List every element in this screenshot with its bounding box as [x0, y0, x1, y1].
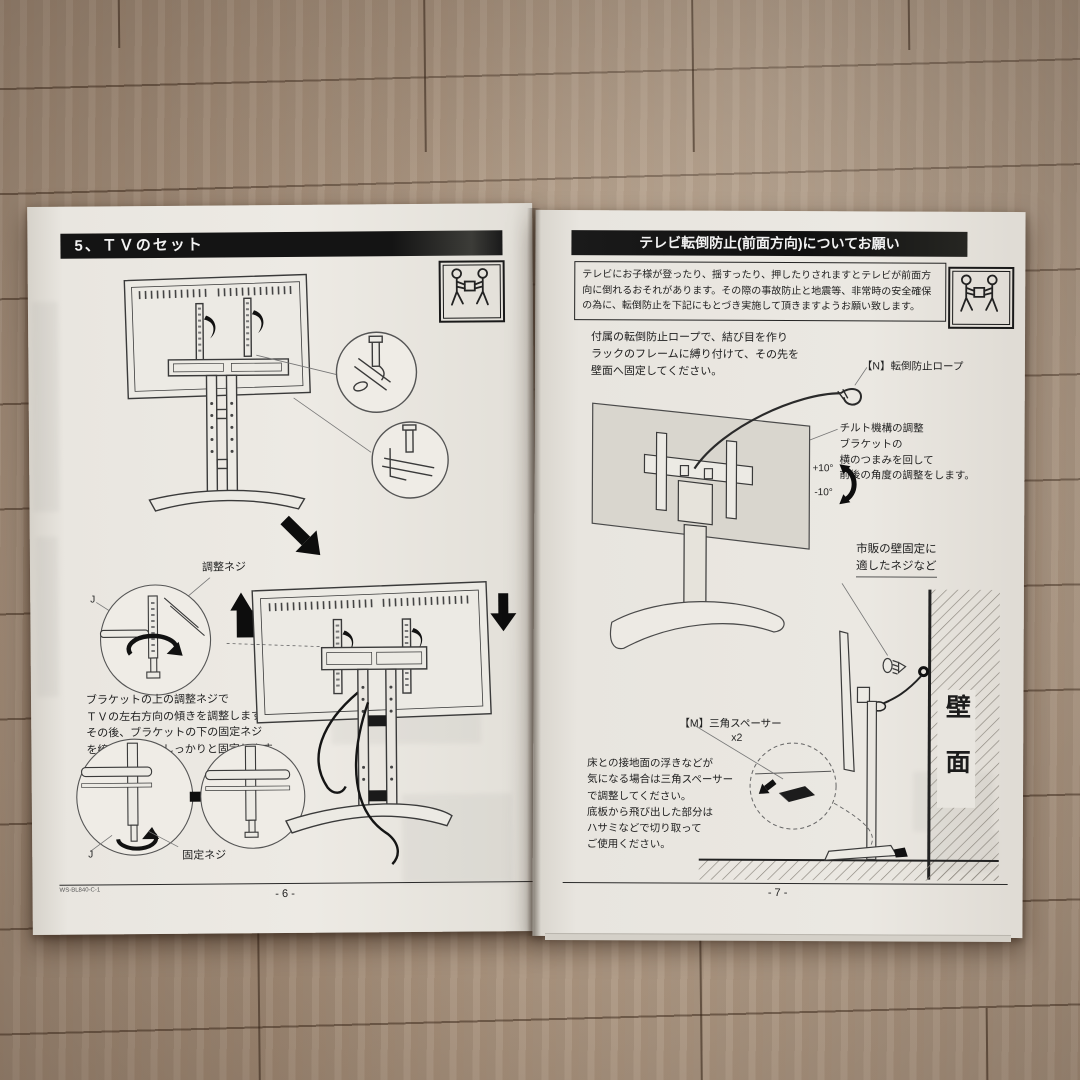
bracket-side: [857, 687, 869, 702]
stand-rail: [322, 647, 427, 670]
center-fold-shadow: [527, 208, 541, 936]
tv-back-panel: [124, 274, 310, 398]
fix-screw-label: 固定ネジ: [182, 846, 226, 862]
floor-line: [699, 860, 999, 861]
stand-base: [286, 803, 452, 833]
adjust-screw-detail-circle: [82, 577, 243, 706]
foot-stopper: [894, 848, 908, 858]
two-person-carry-tv-icon: [953, 272, 1005, 318]
page-number: - 6 -: [33, 886, 538, 902]
photo-of-manual: 5、ＴＶのセット: [0, 0, 1080, 1080]
insert-arrow-icon: [755, 777, 778, 799]
rope-side: [883, 675, 921, 703]
detail-circle-hook-top: [336, 332, 417, 413]
tv-mounting-front-illustration: [48, 262, 460, 545]
section-title-bar: 5、ＴＶのセット: [60, 230, 502, 258]
triangle-spacer: [779, 786, 815, 802]
bleed-through-ghost: [36, 537, 59, 697]
wall-anchor: [920, 668, 928, 676]
tv-side-view: [839, 631, 855, 771]
adjust-screw-label: 調整ネジ: [202, 558, 246, 574]
floor-hatch: [699, 860, 999, 881]
carry-warning-box: [948, 267, 1014, 329]
section-title: 5、ＴＶのセット: [74, 237, 203, 255]
step-arrow-icon: [273, 508, 331, 566]
wall-surface-label: 壁面: [937, 690, 976, 808]
page-number: - 7 -: [533, 886, 1023, 900]
j-part-label: J: [88, 849, 93, 860]
spacer-part-label: 【M】三角スペーサー: [679, 716, 781, 731]
stand-rail: [168, 359, 288, 376]
base-side: [825, 845, 897, 860]
spacer-qty-label: x2: [731, 732, 742, 744]
tilt-range-arrow-icon: [839, 462, 865, 506]
tilt-plus-label: +10°: [812, 463, 833, 474]
manual-page-6: 5、ＴＶのセット: [27, 203, 538, 935]
detail-circle-hook-bottom: [372, 422, 449, 499]
down-arrow-icon: [490, 593, 516, 631]
floor-gap-note: 床との接地面の浮きなどが 気になる場合は三角スペーサー で調整してください。 底…: [587, 755, 733, 853]
warning-notice-box: テレビにお子様が登ったり、揺すったり、押したりされますとテレビが前面方 向に倒れ…: [574, 261, 946, 321]
tv-on-stand-illustration: [226, 571, 528, 873]
tilt-minus-label: -10°: [814, 487, 833, 498]
wall-screw-icon: [883, 658, 906, 674]
manual-page-7: テレビ転倒防止(前面方向)についてお願い テレビにお子様が登ったり、揺すったり、…: [532, 210, 1025, 938]
up-arrow-icon: [230, 592, 255, 637]
section-title-bar: テレビ転倒防止(前面方向)についてお願い: [571, 230, 967, 257]
wall-screw-label: 市販の壁固定に 適したネジなど: [856, 541, 937, 578]
section-title: テレビ転倒防止(前面方向)についてお願い: [639, 234, 900, 251]
